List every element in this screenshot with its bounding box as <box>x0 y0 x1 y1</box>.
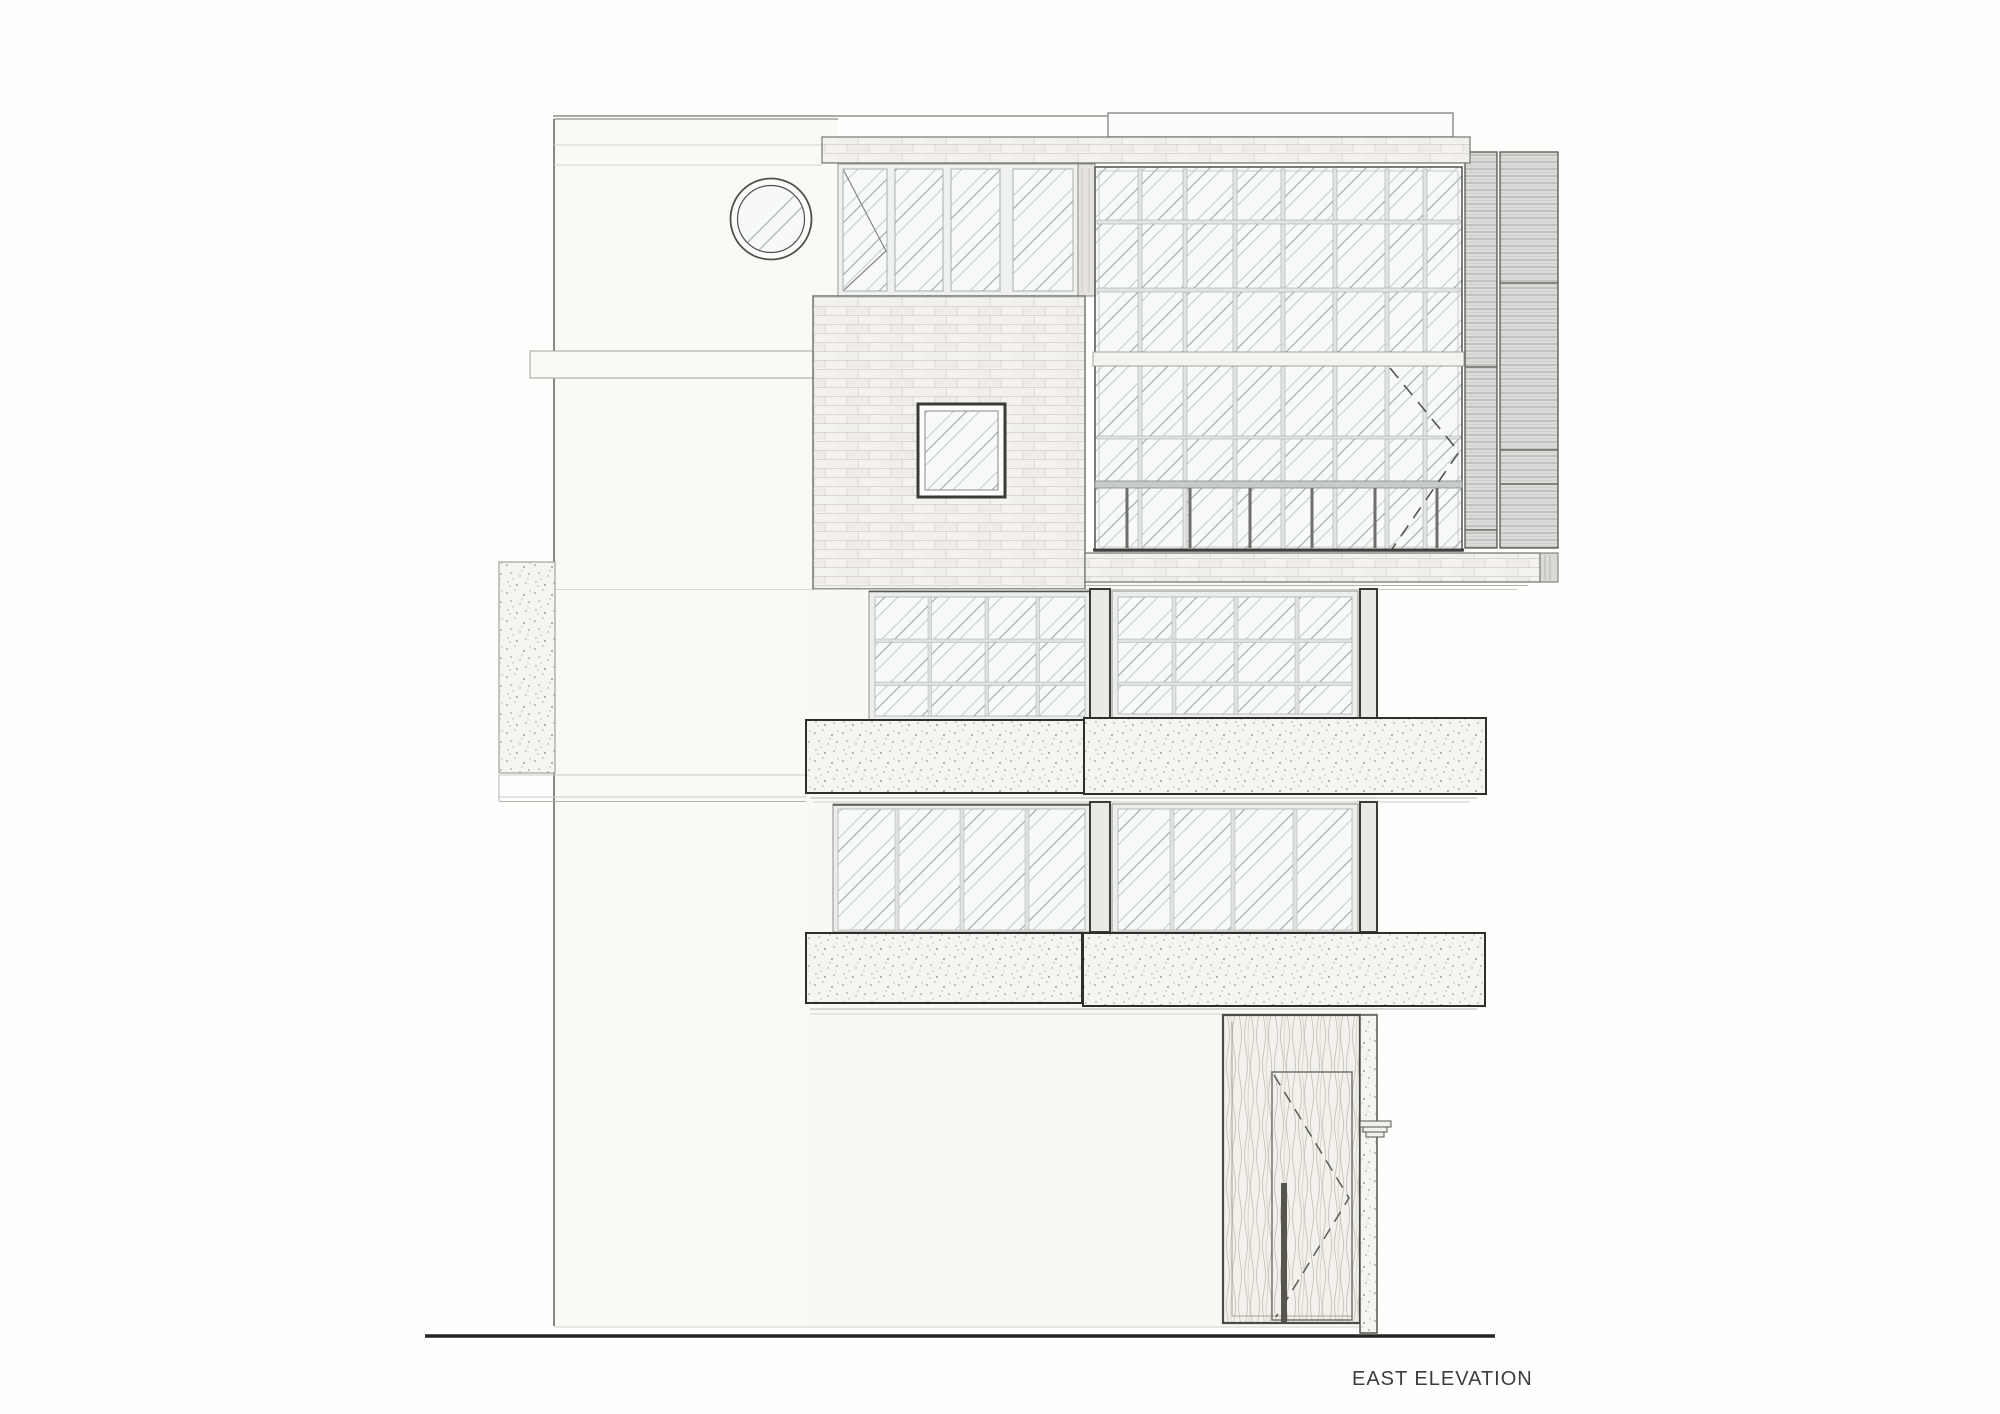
east-elevation-drawing <box>0 0 2000 1414</box>
window-pier <box>1360 802 1377 932</box>
clerestory-pane <box>1013 169 1073 291</box>
square-window-glass <box>925 411 998 490</box>
corrugated-cladding <box>1465 152 1558 548</box>
window-pier <box>1360 589 1377 720</box>
drawing-title: EAST ELEVATION <box>1352 1368 1552 1391</box>
left-wall-plane <box>554 119 838 1326</box>
clerestory-windows <box>838 164 1095 296</box>
middle-window-band <box>869 589 1377 720</box>
entry-door <box>1223 1015 1391 1333</box>
drawing-sheet: EAST ELEVATION <box>0 0 2000 1414</box>
lower-window-band <box>833 802 1377 932</box>
clerestory-pane <box>951 169 1000 291</box>
door-side-pier <box>1360 1015 1377 1333</box>
balcony-band-upper <box>806 718 1486 802</box>
roof-slab-edge <box>1108 113 1453 137</box>
window-pier <box>1090 802 1110 932</box>
door-timber-panel <box>1223 1015 1360 1323</box>
door-handle <box>1281 1183 1287 1322</box>
spandrel-band <box>1093 352 1464 366</box>
clerestory-pane <box>895 169 943 291</box>
balcony-band-lower <box>806 933 1485 1014</box>
circular-window <box>731 179 812 260</box>
transom-rail <box>1095 481 1462 488</box>
brick-pier <box>1078 164 1095 296</box>
brick-wall-panel <box>813 296 1085 589</box>
clerestory-pane <box>843 169 887 291</box>
left-stucco-pilaster <box>499 562 555 773</box>
brick-parapet-band <box>822 137 1470 163</box>
window-pier <box>1090 589 1110 720</box>
curtain-wall-grid <box>1093 167 1464 551</box>
left-ledge <box>530 351 813 378</box>
